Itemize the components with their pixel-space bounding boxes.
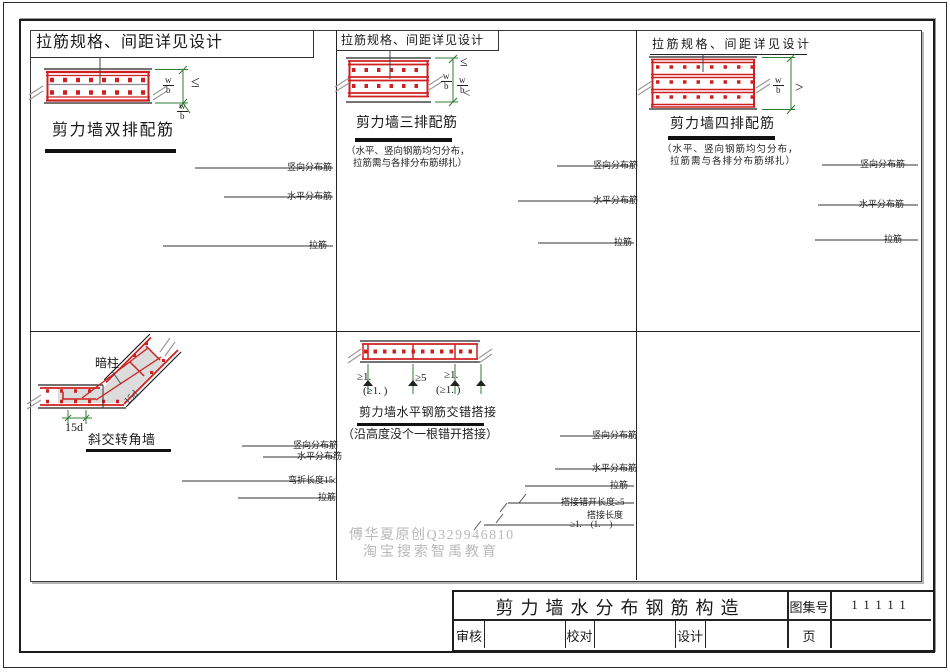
linework-layer [0,0,950,672]
p3-label-tie-bars: 拉筋 [884,235,902,244]
p2-le-symbol: ≤ [460,55,468,71]
tb-v-484 [484,620,485,648]
p1-label-horizontal-bars: 水平分布筋 [287,192,332,201]
p5-label-lap-length-value: ≥1. (1. ) [570,520,612,529]
p2-label-vertical-bars: 竖向分布筋 [593,161,638,170]
p1-le-symbol: ≤ [191,74,200,92]
watermark-line2: 淘宝搜索智禹教育 [363,541,499,561]
p3-wall-section [638,54,795,114]
p2-wb-fraction-1: w b [441,72,452,91]
design-label: 设计 [675,626,705,645]
p3-wb-fraction: w b [773,76,784,95]
p4-label-bend-length: 弯折长度15d [288,476,338,485]
p2-title-underline [355,138,452,142]
tb-v-705 [705,620,706,648]
p3-label-vertical-bars: 竖向分布筋 [860,160,905,169]
p5-dim1p: (≥1. ) [363,385,387,398]
p1-wb-fraction-2: w b [177,102,188,121]
p2-wall-section [335,50,458,106]
p5-label-stagger-length: 搭接错开长度≥5 [561,498,624,507]
p5-dim2: ≥5 [415,372,427,385]
review-label: 审核 [454,626,484,645]
p1-label-vertical-bars: 竖向分布筋 [287,163,332,172]
atlas-number-value: 11111 [832,597,931,613]
p3-label-horizontal-bars: 水平分布筋 [859,200,904,209]
p2-note-line1: （水平、竖向钢筋均匀分布， [346,147,470,158]
p2-label-tie-bars: 拉筋 [614,238,632,247]
p3-gt-symbol: > [795,80,803,97]
p1-title-underline [45,149,176,153]
proof-label: 校对 [565,626,594,645]
page-label: 页 [788,626,830,645]
p5-dim1: ≥1. [357,371,371,384]
p5-label-tie-bars: 拉筋 [610,481,628,490]
p5-title: 剪力墙水平钢筋交错搭接 [359,406,497,420]
p5-title-underline [357,423,484,426]
p4-column-label: 暗柱 [95,357,119,371]
drawing-sheet: 拉筋规格、间距详见设计 w b ≤ w b 剪力墙双排配筋 竖向分布筋 水平分布… [0,0,950,672]
tb-v-594 [594,620,595,648]
p2-heading: 拉筋规格、间距详见设计 [341,34,484,48]
p1-title: 剪力墙双排配筋 [52,122,175,140]
p4-label-vertical-bars: 竖向分布筋 [293,441,338,450]
p4-title-underline [86,449,171,452]
label-leader-lines [163,165,918,525]
p2-label-horizontal-bars: 水平分布筋 [593,196,638,205]
p3-title: 剪力墙四排配筋 [670,117,775,133]
p3-title-underline [668,136,775,140]
p5-label-horizontal-bars: 水平分布筋 [592,464,637,473]
p5-label-vertical-bars: 竖向分布筋 [592,431,637,440]
p5-dim3: ≥1. [444,369,458,382]
p3-heading: 拉筋规格、间距详见设计 [652,38,812,52]
p2-lt-symbol: < [463,86,470,101]
p1-label-tie-bars: 拉筋 [309,241,327,250]
p5-note: （沿高度没个一根错开搭接） [342,428,498,442]
atlas-number-label: 图集号 [788,597,830,616]
p3-note-line2: 拉筋需与各排分布筋绑扎） [670,157,796,168]
p1-heading: 拉筋规格、间距详见设计 [36,34,223,52]
sheet-title: 剪力墙水分布钢筋构造 [454,594,787,620]
p5-dim3p: (≥1. ) [436,384,460,397]
p4-title: 斜交转角墙 [88,433,156,448]
p2-note-line2: 拉筋需与各排分布筋绑扎） [353,159,467,170]
p4-15d-dim: 15d [65,421,83,435]
p4-corner-wall [27,334,181,424]
p1-wb-den: b [163,86,174,95]
p3-note-line1: （水平、竖向钢筋均匀分布， [662,145,799,156]
p1-wb-fraction-1: w b [163,76,174,95]
p4-label-tie-bars: 拉筋 [318,493,336,502]
p2-title: 剪力墙三排配筋 [356,116,458,132]
p4-label-horizontal-bars: 水平分布筋 [297,452,342,461]
